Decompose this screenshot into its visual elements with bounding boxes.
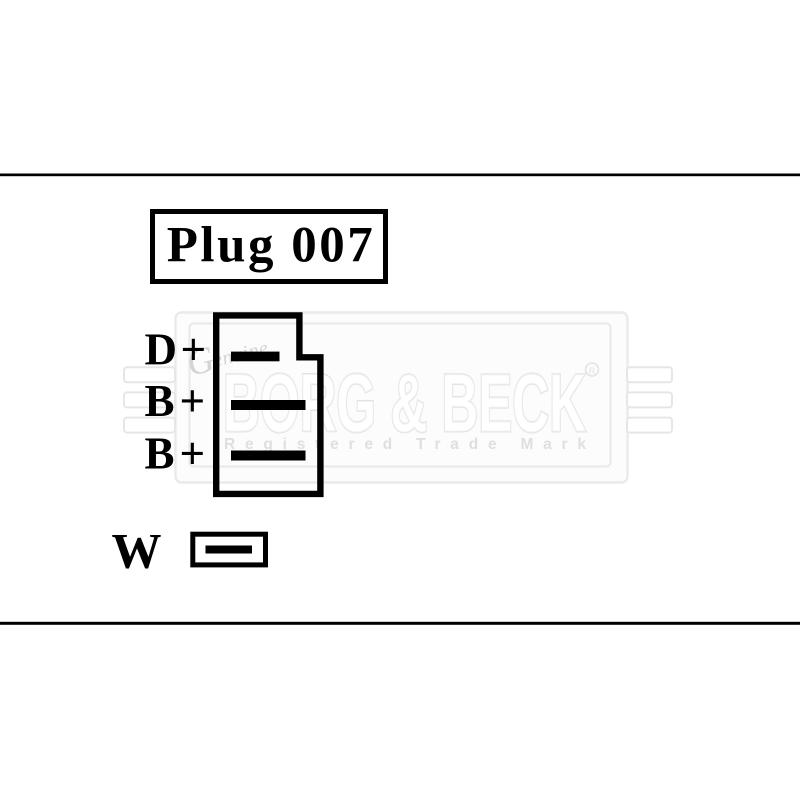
svg-text:R: R (589, 366, 596, 376)
svg-text:D+: D+ (145, 325, 207, 375)
svg-text:W: W (112, 523, 162, 579)
svg-text:Plug 007: Plug 007 (167, 218, 375, 274)
